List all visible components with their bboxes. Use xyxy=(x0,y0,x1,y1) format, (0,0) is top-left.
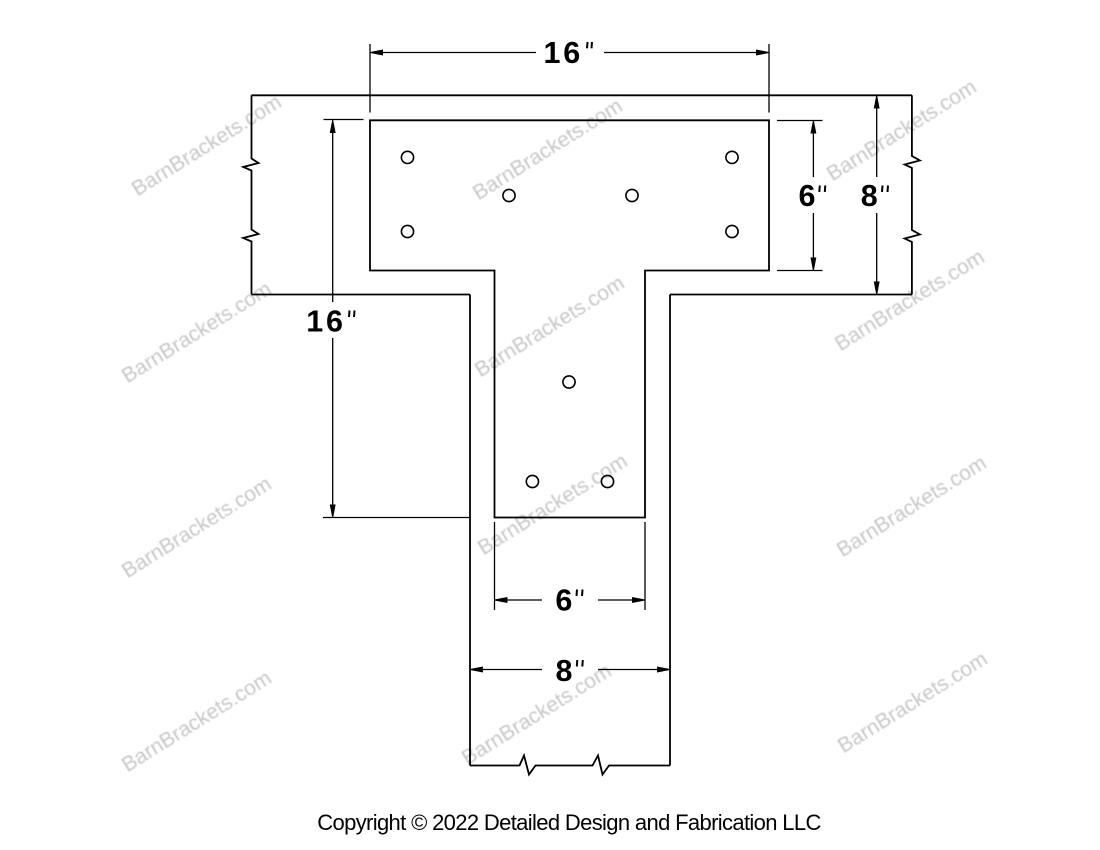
svg-text:BarnBrackets.com: BarnBrackets.com xyxy=(469,94,627,204)
svg-text:8: 8 xyxy=(861,179,878,213)
svg-text:BarnBrackets.com: BarnBrackets.com xyxy=(831,245,989,355)
svg-text:BarnBrackets.com: BarnBrackets.com xyxy=(833,451,991,561)
svg-text:BarnBrackets.com: BarnBrackets.com xyxy=(118,472,276,582)
svg-text:16: 16 xyxy=(306,305,346,339)
svg-text:BarnBrackets.com: BarnBrackets.com xyxy=(128,90,286,200)
svg-text:BarnBrackets.com: BarnBrackets.com xyxy=(118,666,276,776)
svg-text:BarnBrackets.com: BarnBrackets.com xyxy=(834,647,992,757)
svg-text:BarnBrackets.com: BarnBrackets.com xyxy=(823,75,981,185)
svg-text:BarnBrackets.com: BarnBrackets.com xyxy=(458,659,616,769)
svg-text:Copyright © 2022 Detailed Desi: Copyright © 2022 Detailed Design and Fab… xyxy=(317,810,821,835)
svg-text:16: 16 xyxy=(544,36,584,70)
svg-text:BarnBrackets.com: BarnBrackets.com xyxy=(474,449,632,559)
svg-text:6: 6 xyxy=(555,584,572,618)
svg-text:6: 6 xyxy=(799,179,816,213)
svg-text:8: 8 xyxy=(556,654,573,688)
